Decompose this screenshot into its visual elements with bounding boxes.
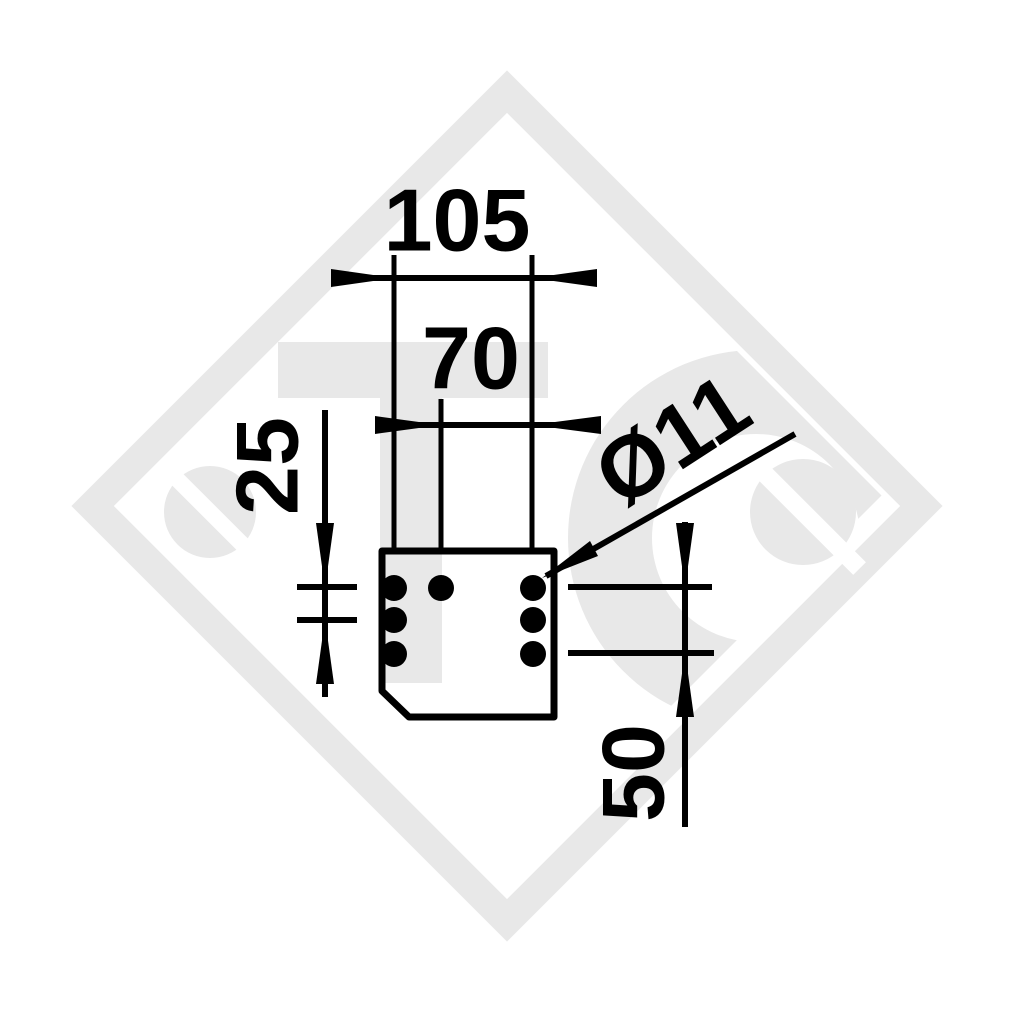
arrowhead — [676, 523, 694, 588]
arrowhead — [316, 619, 334, 684]
arrowhead — [532, 269, 597, 287]
dimension-label-25: 25 — [218, 417, 317, 515]
arrowhead — [532, 416, 601, 434]
dimension-label-50: 50 — [584, 724, 683, 822]
dimension-label-70: 70 — [422, 309, 520, 408]
hole — [520, 575, 546, 601]
hole — [520, 607, 546, 633]
dimension-drawing-svg: 105 70 25 50 Ø11 — [0, 0, 1024, 1024]
hole — [428, 575, 454, 601]
arrowhead — [316, 523, 334, 588]
hole — [381, 607, 407, 633]
hole-group — [381, 575, 546, 667]
drawing-canvas: 105 70 25 50 Ø11 — [0, 0, 1024, 1024]
dimension-label-105: 105 — [384, 171, 531, 270]
hole — [381, 641, 407, 667]
hole — [520, 641, 546, 667]
arrowhead — [331, 269, 394, 287]
watermark-T-stem — [380, 398, 442, 683]
hole — [381, 575, 407, 601]
